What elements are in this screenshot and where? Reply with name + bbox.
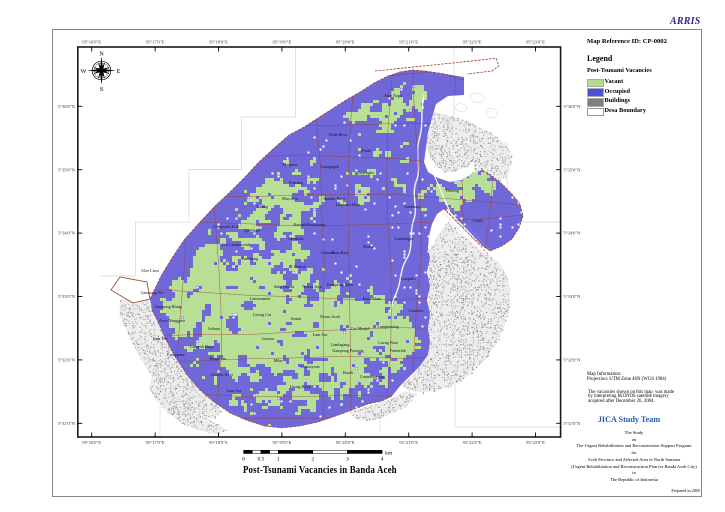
svg-text:5°36'0"N: 5°36'0"N xyxy=(58,104,76,109)
svg-text:Gampong Pie: Gampong Pie xyxy=(141,290,164,295)
svg-text:95°23'0"E: 95°23'0"E xyxy=(526,440,545,445)
svg-text:0.5: 0.5 xyxy=(257,456,264,462)
svg-text:Lamseupeung: Lamseupeung xyxy=(360,374,384,379)
svg-text:4: 4 xyxy=(381,456,384,462)
svg-text:Lampulo: Lampulo xyxy=(400,276,415,281)
svg-text:Bandar Baru: Bandar Baru xyxy=(323,196,345,201)
svg-text:W: W xyxy=(81,68,87,75)
svg-text:95°17'0"E: 95°17'0"E xyxy=(146,40,165,45)
svg-text:Lampoh Daya: Lampoh Daya xyxy=(190,344,214,349)
svg-text:2: 2 xyxy=(311,456,314,462)
svg-text:3: 3 xyxy=(346,456,349,462)
svg-text:Lambaro: Lambaro xyxy=(404,204,419,209)
svg-text:Cot Mesjid: Cot Mesjid xyxy=(351,326,371,331)
svg-text:5°36'0"N: 5°36'0"N xyxy=(563,104,581,109)
svg-text:Tibueng: Tibueng xyxy=(445,188,460,193)
svg-text:95°21'0"E: 95°21'0"E xyxy=(399,440,418,445)
svg-text:Lamdingin: Lamdingin xyxy=(395,236,414,241)
svg-text:Lambaro Skep: Lambaro Skep xyxy=(336,202,361,207)
svg-text:Cadek: Cadek xyxy=(473,218,485,223)
svg-text:5°34'0"N: 5°34'0"N xyxy=(58,231,76,236)
svg-text:Peunayong: Peunayong xyxy=(307,222,327,227)
svg-text:Deah Raya: Deah Raya xyxy=(329,132,348,137)
svg-text:5°34'0"N: 5°34'0"N xyxy=(563,231,581,236)
svg-text:95°20'0"E: 95°20'0"E xyxy=(336,40,355,45)
svg-text:Mibo: Mibo xyxy=(273,358,282,363)
svg-text:Lambung: Lambung xyxy=(242,256,259,261)
svg-text:Lamdom: Lamdom xyxy=(408,308,424,313)
svg-text:Lampineung: Lampineung xyxy=(377,324,399,329)
svg-text:5°33'0"N: 5°33'0"N xyxy=(563,294,581,299)
svg-text:Lam Ara: Lam Ara xyxy=(313,332,328,337)
svg-text:Kuta Raja: Kuta Raja xyxy=(332,250,349,255)
svg-text:Geuceu Kaye: Geuceu Kaye xyxy=(211,372,234,377)
svg-text:Jeulingke: Jeulingke xyxy=(358,170,374,175)
svg-text:N: N xyxy=(99,51,104,58)
svg-text:Merduati: Merduati xyxy=(288,236,304,241)
svg-text:Cot Lamkuweuh: Cot Lamkuweuh xyxy=(222,242,251,247)
svg-text:Peuniti: Peuniti xyxy=(294,264,307,269)
svg-text:Lamteumen: Lamteumen xyxy=(250,296,271,301)
svg-text:Lamjamee: Lamjamee xyxy=(167,352,185,357)
svg-text:95°16'0"E: 95°16'0"E xyxy=(82,40,101,45)
svg-text:Tibang: Tibang xyxy=(256,204,269,209)
svg-text:Prada: Prada xyxy=(361,148,371,153)
svg-text:km: km xyxy=(385,450,393,456)
svg-text:Keudah: Keudah xyxy=(293,222,307,227)
svg-text:95°23'0"E: 95°23'0"E xyxy=(526,40,545,45)
svg-text:Neusu Aceh: Neusu Aceh xyxy=(320,314,341,319)
svg-text:Pineung: Pineung xyxy=(289,180,304,185)
svg-text:Mns Jaya: Mns Jaya xyxy=(282,196,298,201)
svg-text:95°21'0"E: 95°21'0"E xyxy=(399,40,418,45)
svg-text:Kuta Alam: Kuta Alam xyxy=(363,296,382,301)
svg-text:5°31'0"N: 5°31'0"N xyxy=(58,421,76,426)
svg-text:Gampong Blang: Gampong Blang xyxy=(154,304,182,309)
svg-text:Lamsayeun: Lamsayeun xyxy=(300,364,320,369)
svg-text:Lampuot: Lampuot xyxy=(282,162,298,167)
svg-text:5°31'0"N: 5°31'0"N xyxy=(563,421,581,426)
svg-text:Alue Naga: Alue Naga xyxy=(384,93,402,98)
svg-text:95°19'0"E: 95°19'0"E xyxy=(272,440,291,445)
svg-text:95°20'0"E: 95°20'0"E xyxy=(336,440,355,445)
svg-text:Lueng Bata: Lueng Bata xyxy=(378,340,398,345)
svg-text:Ulee Lheu: Ulee Lheu xyxy=(141,268,159,273)
svg-text:Gp Pikee: Gp Pikee xyxy=(244,228,260,233)
svg-text:Lamlagang: Lamlagang xyxy=(331,342,351,347)
svg-text:Lam Teh: Lam Teh xyxy=(153,336,169,341)
svg-text:Asoe Nanggroe: Asoe Nanggroe xyxy=(159,318,185,323)
svg-text:Batoh: Batoh xyxy=(343,370,354,375)
svg-text:95°18'0"E: 95°18'0"E xyxy=(209,440,228,445)
svg-text:95°16'0"E: 95°16'0"E xyxy=(82,440,101,445)
svg-text:5°32'0"N: 5°32'0"N xyxy=(58,358,76,363)
svg-text:95°18'0"E: 95°18'0"E xyxy=(209,40,228,45)
svg-text:Lhong Raya: Lhong Raya xyxy=(290,384,311,389)
svg-text:95°19'0"E: 95°19'0"E xyxy=(272,40,291,45)
svg-text:95°22'0"E: 95°22'0"E xyxy=(463,40,482,45)
svg-text:Seutui: Seutui xyxy=(291,316,303,321)
svg-text:1: 1 xyxy=(277,456,280,462)
svg-text:Sukma: Sukma xyxy=(208,326,220,331)
svg-text:Lhong Cut: Lhong Cut xyxy=(253,312,272,317)
svg-text:Lampaseh Kok: Lampaseh Kok xyxy=(213,224,239,229)
svg-text:Gampong Pineung: Gampong Pineung xyxy=(332,348,364,353)
svg-text:Lamgugob: Lamgugob xyxy=(321,164,339,169)
svg-text:95°22'0"E: 95°22'0"E xyxy=(463,440,482,445)
svg-text:0: 0 xyxy=(242,456,245,462)
svg-text:S: S xyxy=(100,86,104,93)
svg-text:Panteriek: Panteriek xyxy=(390,348,407,353)
svg-text:Neusu Jaya: Neusu Jaya xyxy=(302,284,321,289)
svg-text:5°33'0"N: 5°33'0"N xyxy=(58,294,76,299)
svg-text:E: E xyxy=(117,68,121,75)
svg-text:5°35'0"N: 5°35'0"N xyxy=(58,167,76,172)
svg-text:Suka Ramai: Suka Ramai xyxy=(274,284,295,289)
svg-text:5°35'0"N: 5°35'0"N xyxy=(563,167,581,172)
svg-text:95°17'0"E: 95°17'0"E xyxy=(146,440,165,445)
svg-text:5°32'0"N: 5°32'0"N xyxy=(563,358,581,363)
svg-text:Lam Ara: Lam Ara xyxy=(227,388,242,393)
svg-text:Geuceu: Geuceu xyxy=(262,336,276,341)
svg-text:Emperom: Emperom xyxy=(210,356,227,361)
svg-text:Kampong Baru: Kampong Baru xyxy=(327,282,354,287)
svg-text:Mulia: Mulia xyxy=(363,244,373,249)
